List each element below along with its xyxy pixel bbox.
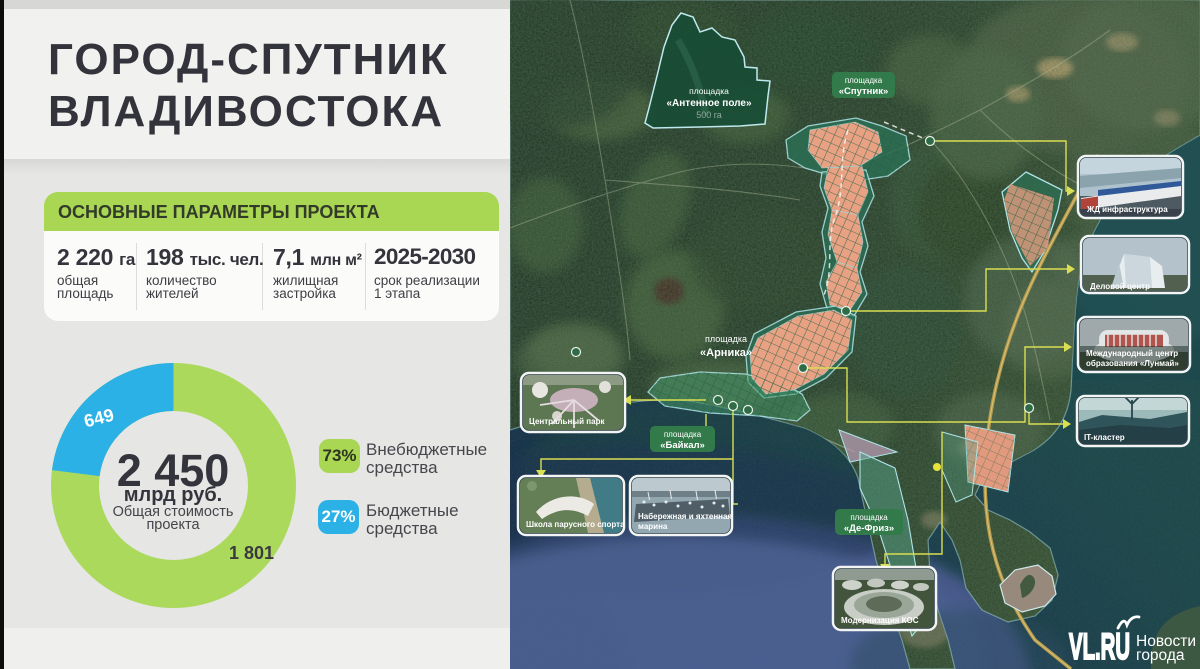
svg-text:площадка: площадка [705,334,747,344]
svg-text:Международный центр: Международный центр [1086,349,1178,358]
svg-text:«Антенное поле»: «Антенное поле» [666,98,751,109]
svg-text:ЖД инфраструктура: ЖД инфраструктура [1086,205,1168,214]
svg-text:«Спутник»: «Спутник» [839,86,889,97]
svg-text:площадка: площадка [845,76,883,85]
svg-text:«Байкал»: «Байкал» [660,440,705,451]
svg-text:площадка: площадка [689,86,729,96]
svg-text:города: города [1136,647,1185,664]
svg-text:Модернизация КОС: Модернизация КОС [841,616,919,625]
svg-text:Набережная и яхтенная: Набережная и яхтенная [638,512,732,521]
svg-text:площадка: площадка [850,513,888,522]
svg-text:Центральный парк: Центральный парк [529,417,605,426]
svg-text:Школа парусного спорта: Школа парусного спорта [526,520,625,529]
svg-text:Деловой центр: Деловой центр [1090,282,1150,291]
svg-text:площадка: площадка [664,430,702,439]
svg-text:образования «Лунмай»: образования «Лунмай» [1086,359,1179,368]
svg-text:IT-кластер: IT-кластер [1084,433,1125,442]
svg-text:марина: марина [638,522,668,531]
svg-text:VL.RU: VL.RU [1069,627,1130,668]
svg-text:«Арника»: «Арника» [700,347,752,359]
svg-text:500 га: 500 га [696,110,722,120]
svg-text:«Де-Фриз»: «Де-Фриз» [844,523,894,534]
